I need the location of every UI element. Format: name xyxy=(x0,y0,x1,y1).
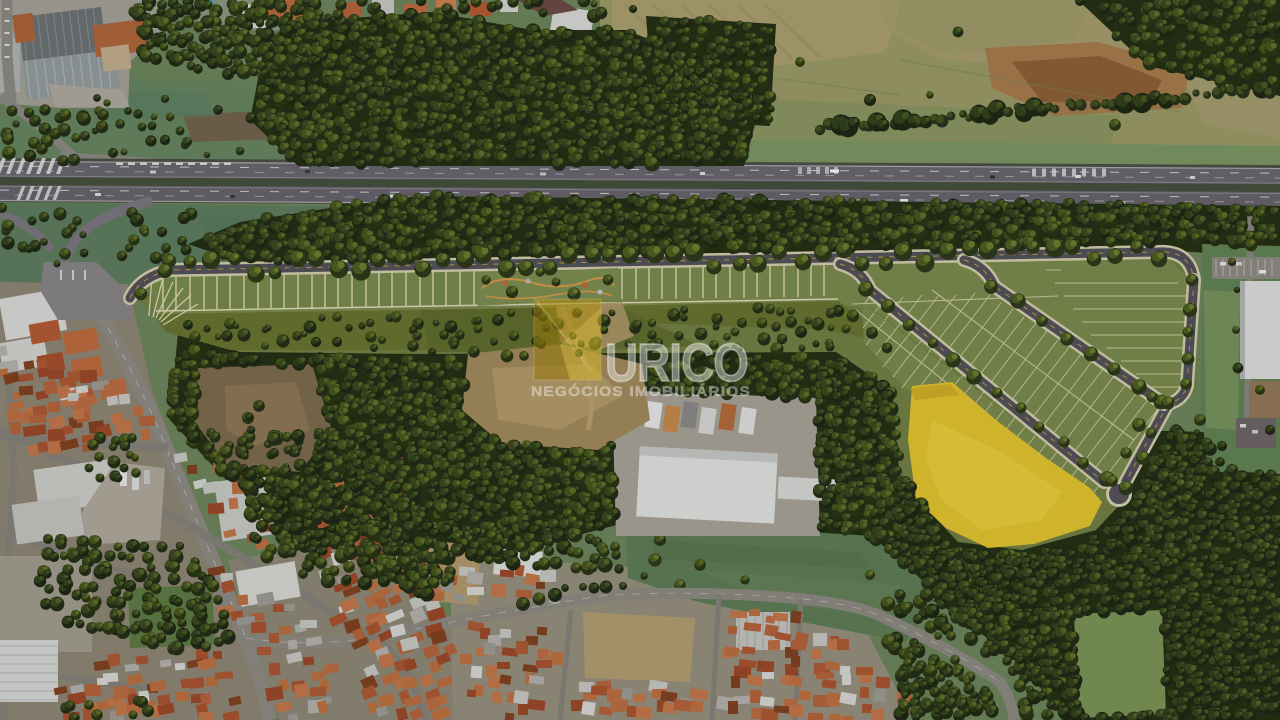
svg-text:NEGÓCIOS IMOBILIÁRIOS: NEGÓCIOS IMOBILIÁRIOS xyxy=(531,384,751,399)
